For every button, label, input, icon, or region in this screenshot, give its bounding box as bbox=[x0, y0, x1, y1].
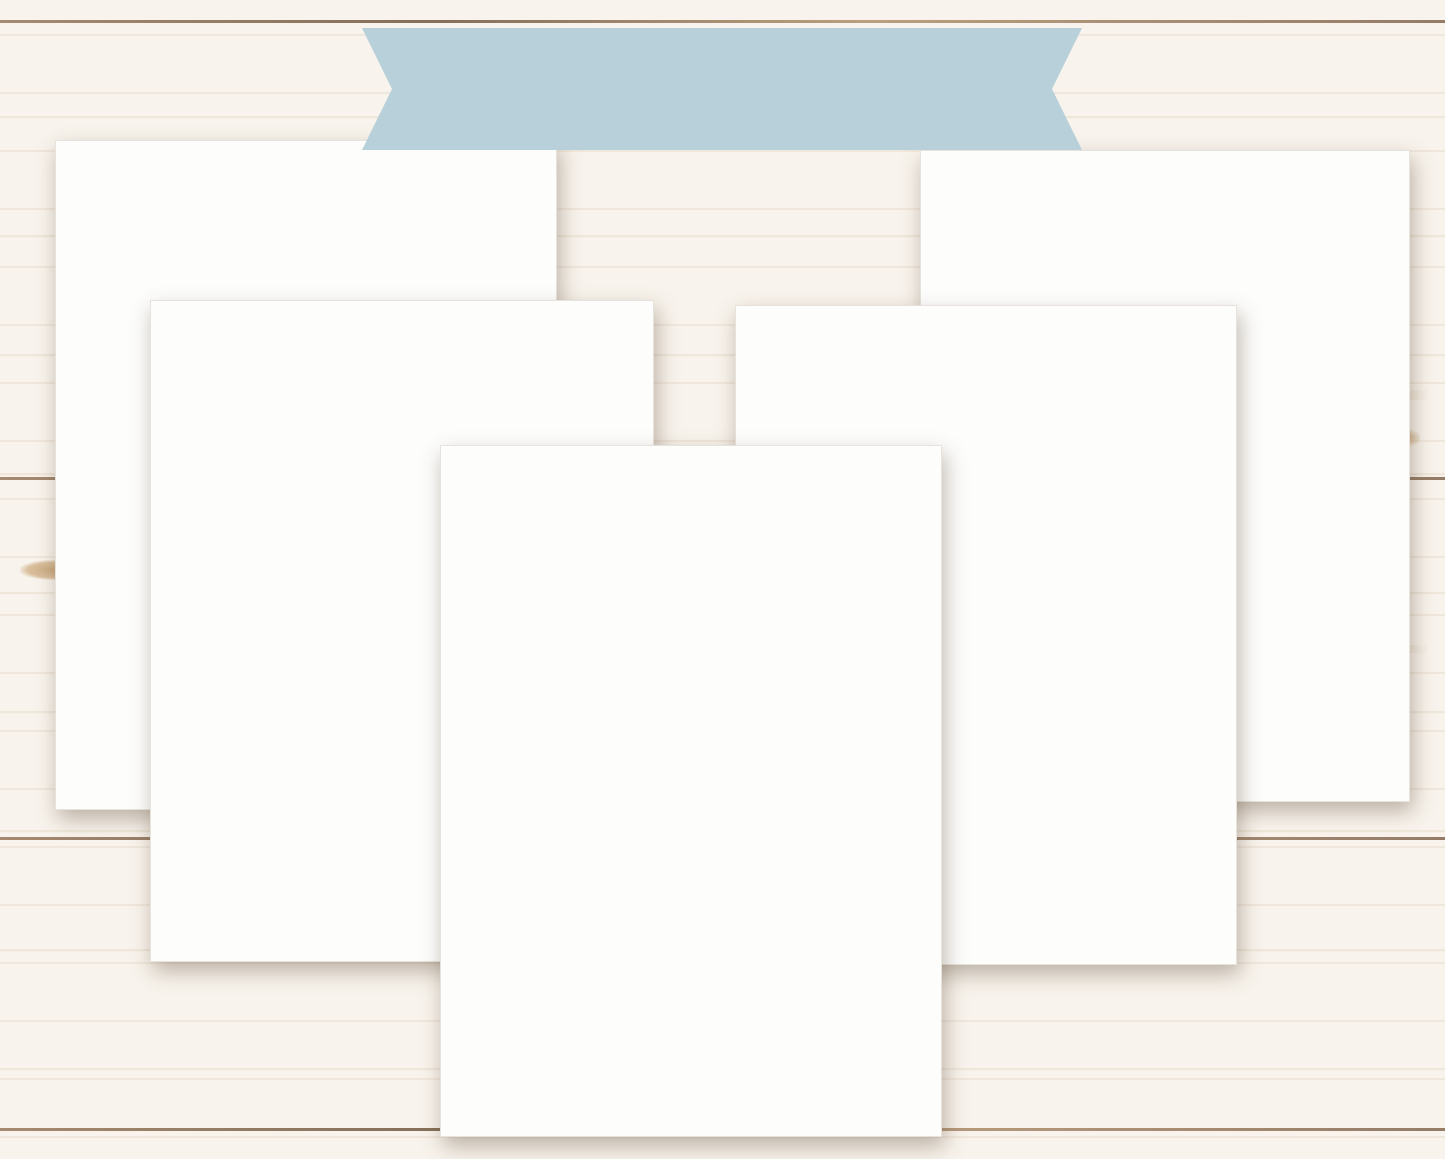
mhp-stickers-logo bbox=[939, 161, 941, 204]
sheet-dated-monthly-calendar bbox=[440, 445, 942, 1137]
mhp-stickers-logo bbox=[459, 456, 461, 499]
mhp-stickers-logo bbox=[169, 311, 171, 354]
product-photo: { "banner": { "label": "DATED BUNDLES", … bbox=[0, 0, 1445, 1159]
wood-seam bbox=[0, 20, 1445, 23]
dated-bundles-banner bbox=[362, 28, 1082, 150]
mhp-stickers-logo bbox=[74, 151, 76, 194]
mhp-stickers-logo bbox=[754, 316, 756, 359]
